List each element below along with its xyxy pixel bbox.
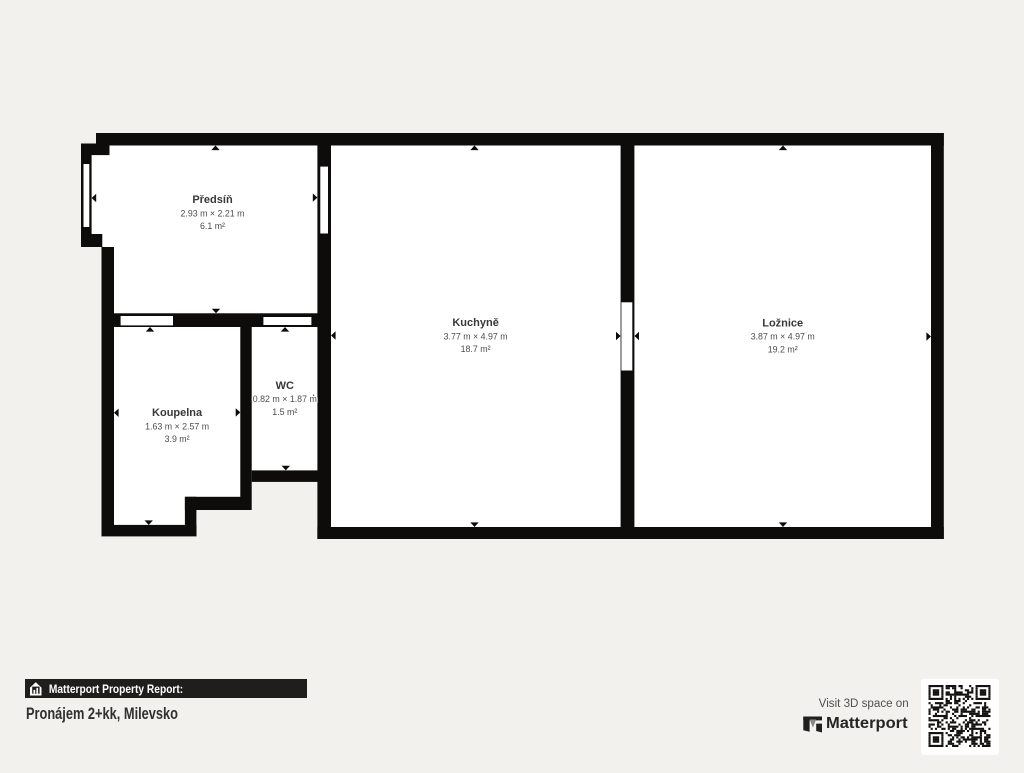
svg-text:Matterport Property Report:: Matterport Property Report: (49, 682, 183, 696)
svg-text:Matterport: Matterport (826, 715, 908, 732)
svg-text:18.7 m²: 18.7 m² (461, 344, 491, 355)
svg-text:Předsíň: Předsíň (192, 194, 233, 206)
svg-text:0.82 m × 1.87 m: 0.82 m × 1.87 m (253, 394, 317, 405)
svg-text:3.77 m × 4.97 m: 3.77 m × 4.97 m (444, 331, 508, 342)
svg-text:Pronájem 2+kk, Milevsko: Pronájem 2+kk, Milevsko (26, 705, 178, 723)
svg-text:Kuchyně: Kuchyně (452, 317, 498, 329)
svg-text:3.87 m × 4.97 m: 3.87 m × 4.97 m (751, 332, 815, 343)
svg-text:3.9 m²: 3.9 m² (165, 434, 190, 445)
svg-text:Visit 3D space on: Visit 3D space on (819, 698, 909, 710)
svg-text:WC: WC (276, 380, 294, 392)
svg-text:2.93 m × 2.21 m: 2.93 m × 2.21 m (181, 208, 245, 219)
svg-text:6.1 m²: 6.1 m² (200, 221, 225, 232)
svg-text:1.5 m²: 1.5 m² (272, 407, 297, 418)
svg-text:Ložnice: Ložnice (762, 317, 803, 329)
svg-text:19.2 m²: 19.2 m² (768, 344, 798, 355)
svg-text:1.63 m × 2.57 m: 1.63 m × 2.57 m (145, 421, 209, 432)
svg-text:Koupelna: Koupelna (152, 407, 203, 419)
